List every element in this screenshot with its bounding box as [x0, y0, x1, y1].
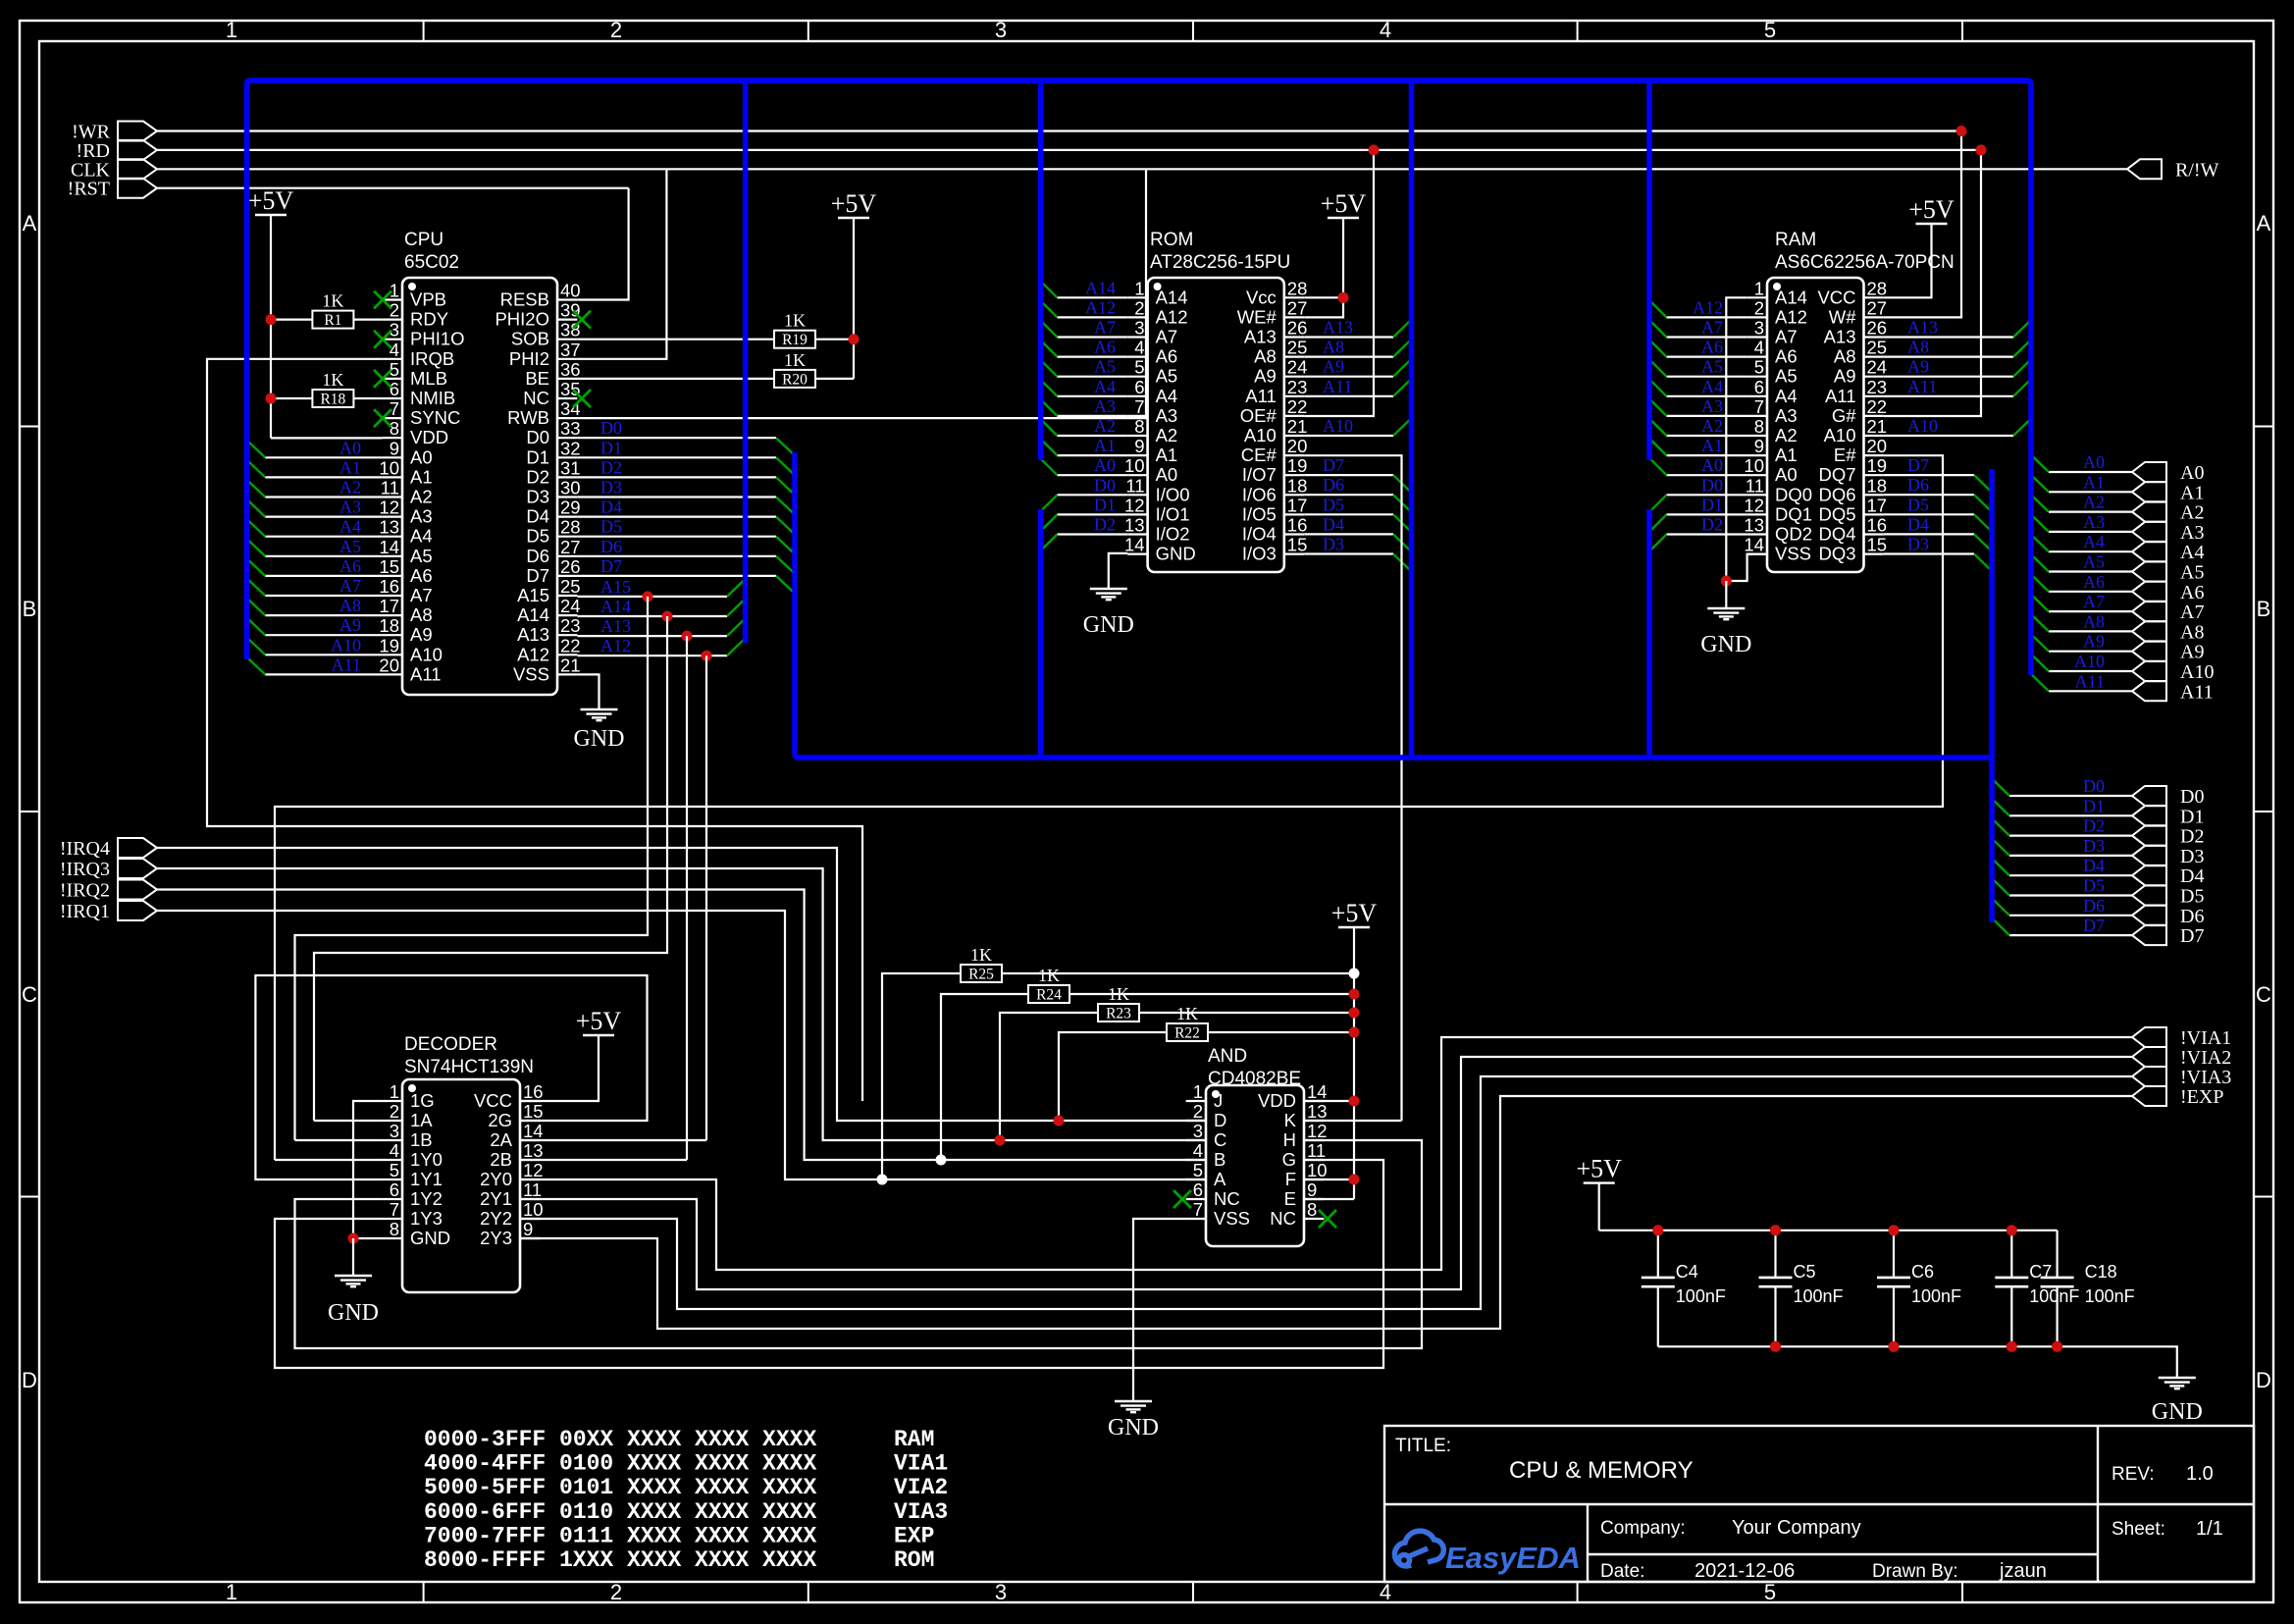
svg-text:A7: A7 [2180, 602, 2204, 623]
svg-text:10: 10 [379, 457, 399, 478]
svg-text:D: D [22, 1368, 37, 1392]
svg-text:D7: D7 [1323, 455, 1344, 475]
svg-text:1K: 1K [970, 945, 992, 965]
svg-text:6: 6 [390, 1179, 399, 1200]
svg-text:VCC: VCC [1817, 287, 1855, 307]
svg-text:3: 3 [1134, 318, 1144, 339]
svg-text:DQ1: DQ1 [1775, 503, 1812, 524]
svg-text:2021-12-06: 2021-12-06 [1694, 1560, 1795, 1582]
svg-text:A11: A11 [1825, 386, 1856, 406]
svg-text:EXP: EXP [894, 1523, 934, 1548]
svg-text:D4: D4 [1907, 514, 1929, 534]
svg-text:4: 4 [1754, 338, 1764, 358]
svg-text:23: 23 [1287, 377, 1308, 397]
svg-text:D2: D2 [526, 466, 549, 487]
svg-text:A13: A13 [517, 624, 549, 645]
svg-text:VSS: VSS [1775, 544, 1811, 564]
svg-text:5: 5 [1193, 1160, 1203, 1180]
svg-text:R/!W: R/!W [2175, 159, 2219, 181]
svg-text:1Y3: 1Y3 [410, 1208, 443, 1229]
svg-text:16: 16 [1867, 515, 1888, 536]
svg-text:A0: A0 [1094, 455, 1116, 475]
svg-text:D7: D7 [1907, 455, 1929, 475]
svg-text:14: 14 [1744, 535, 1764, 555]
svg-text:D2: D2 [600, 457, 622, 477]
svg-text:4: 4 [1380, 1580, 1391, 1604]
svg-text:D4: D4 [2083, 856, 2105, 875]
svg-text:A7: A7 [1094, 318, 1116, 338]
svg-text:!IRQ3: !IRQ3 [60, 859, 110, 880]
svg-text:VIA1: VIA1 [894, 1451, 948, 1477]
svg-text:10: 10 [1744, 455, 1764, 476]
svg-text:A9: A9 [1254, 366, 1277, 387]
svg-text:EasyEDA: EasyEDA [1445, 1541, 1581, 1575]
svg-text:A5: A5 [1156, 366, 1178, 387]
svg-text:6: 6 [1134, 377, 1144, 397]
svg-text:26: 26 [560, 556, 581, 577]
svg-text:A1: A1 [2180, 482, 2204, 503]
svg-text:A14: A14 [1085, 278, 1116, 297]
svg-text:1K: 1K [1038, 966, 1060, 985]
svg-text:9: 9 [1134, 436, 1144, 456]
svg-text:4: 4 [390, 340, 399, 360]
svg-text:VIA3: VIA3 [894, 1499, 948, 1525]
svg-text:D1: D1 [600, 438, 622, 457]
svg-text:11: 11 [1746, 475, 1764, 496]
svg-text:D0: D0 [2083, 776, 2105, 796]
svg-text:7: 7 [390, 1199, 399, 1220]
svg-text:ROM: ROM [1150, 230, 1193, 250]
svg-text:D3: D3 [526, 487, 549, 507]
svg-text:21: 21 [1287, 416, 1308, 437]
svg-text:24: 24 [1867, 357, 1888, 378]
svg-text:D4: D4 [1323, 514, 1344, 534]
svg-text:C6: C6 [1911, 1262, 1934, 1282]
svg-text:7000-7FFF 0111 XXXX XXXX XXXX: 7000-7FFF 0111 XXXX XXXX XXXX [424, 1523, 816, 1548]
svg-text:A13: A13 [1907, 318, 1938, 338]
svg-text:1: 1 [1134, 278, 1144, 298]
svg-text:18: 18 [1287, 475, 1308, 496]
svg-text:13: 13 [1307, 1101, 1328, 1122]
svg-text:I/O2: I/O2 [1156, 524, 1190, 545]
svg-text:G#: G# [1832, 405, 1856, 426]
svg-text:C: C [2256, 982, 2271, 1007]
svg-text:8: 8 [1307, 1199, 1317, 1220]
svg-text:jzaun: jzaun [1999, 1560, 2047, 1582]
svg-text:PHI2: PHI2 [509, 348, 549, 369]
svg-text:A2: A2 [1775, 425, 1798, 445]
svg-text:D: D [2256, 1368, 2271, 1392]
svg-text:4000-4FFF 0100 XXXX XXXX XXXX: 4000-4FFF 0100 XXXX XXXX XXXX [424, 1451, 816, 1477]
svg-text:2Y3: 2Y3 [480, 1228, 512, 1248]
svg-text:1K: 1K [1108, 984, 1129, 1004]
svg-text:A4: A4 [1156, 386, 1178, 406]
svg-text:18: 18 [1867, 475, 1888, 496]
svg-text:A4: A4 [1094, 377, 1116, 396]
svg-text:9: 9 [1754, 436, 1764, 456]
svg-text:A9: A9 [2083, 632, 2105, 652]
svg-text:12: 12 [1307, 1121, 1328, 1141]
svg-text:REV:: REV: [2112, 1464, 2155, 1485]
svg-text:A3: A3 [2180, 522, 2204, 544]
svg-text:D2: D2 [2083, 816, 2105, 836]
svg-text:17: 17 [379, 596, 399, 616]
svg-text:D1: D1 [1094, 495, 1116, 514]
svg-text:2: 2 [1754, 297, 1764, 318]
svg-text:D1: D1 [526, 446, 549, 467]
svg-text:A0: A0 [2180, 462, 2204, 484]
svg-text:23: 23 [560, 615, 581, 636]
svg-text:A11: A11 [1323, 377, 1352, 396]
svg-text:2: 2 [1134, 297, 1144, 318]
svg-text:5000-5FFF 0101 XXXX XXXX XXXX: 5000-5FFF 0101 XXXX XXXX XXXX [424, 1475, 816, 1500]
svg-text:A8: A8 [339, 596, 361, 615]
svg-text:11: 11 [1307, 1140, 1326, 1161]
svg-text:13: 13 [1744, 515, 1764, 536]
svg-text:D0: D0 [1094, 475, 1116, 495]
svg-text:33: 33 [560, 418, 581, 439]
svg-text:1Y2: 1Y2 [410, 1188, 443, 1209]
svg-text:D3: D3 [600, 478, 622, 498]
svg-text:A9: A9 [2180, 642, 2204, 663]
svg-text:A0: A0 [1775, 464, 1798, 485]
svg-text:R20: R20 [782, 371, 808, 388]
svg-text:1/1: 1/1 [2196, 1518, 2223, 1540]
svg-text:D2: D2 [1701, 515, 1723, 535]
svg-text:W#: W# [1829, 306, 1856, 327]
svg-text:A14: A14 [1775, 287, 1807, 307]
svg-text:A8: A8 [2180, 621, 2204, 643]
svg-text:15: 15 [379, 556, 399, 577]
svg-text:D6: D6 [600, 537, 622, 556]
svg-text:CE#: CE# [1241, 445, 1277, 465]
svg-text:21: 21 [1867, 416, 1888, 437]
svg-text:6: 6 [390, 379, 399, 399]
svg-text:14: 14 [1124, 535, 1145, 555]
svg-text:27: 27 [1867, 297, 1888, 318]
svg-text:A12: A12 [600, 636, 631, 655]
svg-text:40: 40 [560, 281, 581, 301]
svg-text:20: 20 [1287, 436, 1308, 456]
svg-text:GND: GND [2152, 1399, 2203, 1425]
svg-text:A5: A5 [2180, 562, 2204, 584]
svg-text:D5: D5 [2083, 876, 2105, 896]
svg-text:A4: A4 [2180, 542, 2204, 563]
svg-text:13: 13 [1124, 515, 1145, 536]
svg-text:28: 28 [560, 517, 581, 538]
svg-text:29: 29 [560, 498, 581, 518]
svg-text:GND: GND [1108, 1415, 1159, 1441]
svg-text:9: 9 [523, 1219, 533, 1239]
svg-text:10: 10 [523, 1199, 544, 1220]
svg-text:19: 19 [1867, 455, 1888, 476]
svg-text:A12: A12 [1156, 306, 1188, 327]
svg-text:A3: A3 [339, 498, 361, 517]
svg-text:Vcc: Vcc [1246, 287, 1277, 307]
svg-text:D7: D7 [526, 565, 549, 586]
svg-text:A11: A11 [1907, 377, 1937, 396]
svg-text:3: 3 [995, 18, 1007, 42]
svg-text:A2: A2 [1156, 425, 1178, 445]
svg-text:1G: 1G [410, 1090, 435, 1111]
svg-text:VDD: VDD [1258, 1090, 1296, 1111]
svg-text:27: 27 [560, 537, 581, 557]
svg-text:A7: A7 [339, 576, 361, 596]
svg-text:11: 11 [381, 478, 399, 498]
svg-text:VDD: VDD [410, 427, 448, 447]
svg-text:R19: R19 [782, 332, 808, 348]
svg-text:A1: A1 [1156, 445, 1178, 465]
svg-text:A5: A5 [339, 537, 361, 556]
svg-text:+5V: +5V [1908, 195, 1955, 224]
svg-text:!VIA1: !VIA1 [2180, 1027, 2231, 1049]
svg-text:D5: D5 [1907, 495, 1929, 514]
svg-text:C18: C18 [2085, 1262, 2117, 1282]
svg-text:11: 11 [1125, 475, 1144, 496]
svg-text:VCC: VCC [474, 1090, 512, 1111]
svg-text:+5V: +5V [1331, 899, 1378, 927]
svg-text:A1: A1 [339, 457, 361, 477]
svg-text:A: A [2257, 211, 2271, 236]
svg-text:ROM: ROM [894, 1547, 934, 1573]
svg-text:D3: D3 [2083, 836, 2105, 856]
svg-text:2: 2 [390, 1101, 399, 1122]
svg-text:A10: A10 [2074, 652, 2105, 671]
svg-text:1K: 1K [784, 311, 806, 331]
svg-text:7: 7 [1134, 396, 1144, 417]
svg-text:I/O1: I/O1 [1156, 503, 1190, 524]
svg-text:DQ4: DQ4 [1818, 524, 1855, 545]
svg-text:A11: A11 [1245, 386, 1277, 406]
svg-text:1K: 1K [322, 370, 343, 390]
svg-text:Drawn By:: Drawn By: [1872, 1561, 1958, 1582]
svg-text:D4: D4 [526, 506, 549, 527]
svg-text:24: 24 [1287, 357, 1308, 378]
svg-text:A4: A4 [1701, 377, 1723, 396]
svg-text:7: 7 [1754, 396, 1764, 417]
svg-text:3: 3 [1193, 1121, 1203, 1141]
svg-text:NC: NC [1214, 1188, 1240, 1209]
svg-text:2A: 2A [490, 1129, 512, 1150]
svg-text:A12: A12 [517, 644, 549, 664]
svg-text:2Y2: 2Y2 [480, 1208, 512, 1229]
svg-text:A5: A5 [1775, 366, 1798, 387]
svg-text:A3: A3 [410, 506, 433, 527]
svg-text:A11: A11 [2180, 681, 2214, 703]
svg-text:!EXP: !EXP [2180, 1086, 2223, 1108]
svg-text:4: 4 [1193, 1140, 1203, 1161]
svg-text:A8: A8 [1323, 338, 1344, 357]
svg-text:A4: A4 [1775, 386, 1798, 406]
svg-text:A7: A7 [2083, 592, 2105, 611]
svg-text:RESB: RESB [500, 289, 549, 310]
svg-text:BE: BE [525, 368, 549, 389]
svg-text:D7: D7 [600, 556, 622, 576]
svg-text:A2: A2 [1701, 416, 1723, 436]
svg-text:3: 3 [390, 1121, 399, 1141]
svg-text:D2: D2 [1094, 515, 1116, 535]
svg-text:!RST: !RST [68, 179, 110, 200]
svg-text:100nF: 100nF [1676, 1286, 1726, 1306]
svg-text:1K: 1K [322, 291, 343, 311]
svg-text:2: 2 [610, 18, 622, 42]
svg-text:28: 28 [1287, 278, 1308, 298]
svg-text:13: 13 [379, 517, 399, 538]
svg-text:D0: D0 [1701, 475, 1723, 495]
svg-text:5: 5 [1754, 357, 1764, 378]
svg-text:A10: A10 [331, 635, 361, 655]
svg-text:SYNC: SYNC [410, 407, 460, 428]
svg-text:8: 8 [390, 1219, 399, 1239]
svg-text:A2: A2 [339, 478, 361, 498]
svg-text:37: 37 [560, 340, 581, 360]
svg-text:12: 12 [1744, 495, 1764, 515]
svg-text:4: 4 [390, 1140, 399, 1161]
svg-text:A9: A9 [1323, 357, 1344, 377]
svg-text:1K: 1K [784, 350, 806, 370]
svg-text:4: 4 [1380, 18, 1391, 42]
svg-text:C5: C5 [1794, 1262, 1816, 1282]
svg-text:A4: A4 [2083, 532, 2105, 551]
svg-text:VIA2: VIA2 [894, 1475, 948, 1500]
svg-text:I/O7: I/O7 [1242, 464, 1277, 485]
svg-text:5: 5 [1764, 1580, 1776, 1604]
svg-text:B: B [23, 597, 37, 621]
svg-text:D1: D1 [2180, 806, 2204, 827]
svg-text:14: 14 [523, 1121, 544, 1141]
svg-text:A3: A3 [2083, 512, 2105, 532]
svg-text:A10: A10 [2180, 661, 2214, 683]
svg-text:A12: A12 [1085, 297, 1116, 317]
svg-text:21: 21 [560, 655, 581, 675]
svg-text:!IRQ2: !IRQ2 [60, 880, 110, 902]
svg-text:5: 5 [1134, 357, 1144, 378]
svg-text:A15: A15 [600, 577, 631, 597]
svg-text:WE#: WE# [1237, 306, 1277, 327]
svg-text:A8: A8 [2083, 611, 2105, 631]
svg-text:8000-FFFF 1XXX XXXX XXXX XXXX: 8000-FFFF 1XXX XXXX XXXX XXXX [424, 1547, 816, 1573]
svg-text:OE#: OE# [1240, 405, 1277, 426]
svg-text:B: B [2257, 597, 2271, 621]
svg-text:A13: A13 [1323, 318, 1353, 338]
svg-text:A12: A12 [1775, 306, 1807, 327]
svg-text:1: 1 [1754, 278, 1764, 298]
svg-text:A14: A14 [600, 597, 631, 616]
svg-text:12: 12 [379, 498, 399, 518]
svg-text:A: A [23, 211, 37, 236]
svg-text:H: H [1283, 1129, 1296, 1150]
svg-text:A14: A14 [517, 604, 549, 625]
svg-text:!VIA3: !VIA3 [2180, 1067, 2231, 1088]
svg-text:TITLE:: TITLE: [1395, 1436, 1451, 1456]
svg-text:9: 9 [1307, 1179, 1317, 1200]
svg-text:10: 10 [1307, 1160, 1328, 1180]
svg-text:DQ7: DQ7 [1818, 464, 1855, 485]
svg-text:D5: D5 [600, 517, 622, 537]
svg-text:14: 14 [379, 537, 399, 557]
svg-text:A6: A6 [1775, 346, 1798, 367]
svg-text:22: 22 [1867, 396, 1888, 417]
svg-text:I/O5: I/O5 [1242, 503, 1277, 524]
svg-text:D7: D7 [2083, 916, 2105, 935]
svg-text:D6: D6 [1323, 475, 1344, 495]
svg-text:+5V: +5V [1576, 1155, 1622, 1183]
svg-text:D6: D6 [526, 546, 549, 566]
svg-text:C4: C4 [1676, 1262, 1698, 1282]
svg-text:1B: 1B [410, 1129, 433, 1150]
svg-text:GND: GND [1700, 632, 1751, 657]
svg-text:A11: A11 [410, 663, 442, 684]
svg-text:D3: D3 [2180, 846, 2204, 867]
svg-text:16: 16 [1287, 515, 1308, 536]
svg-text:I/O4: I/O4 [1242, 524, 1277, 545]
svg-text:D3: D3 [1907, 535, 1929, 554]
svg-text:F: F [1285, 1169, 1296, 1189]
svg-text:+5V: +5V [248, 186, 294, 215]
svg-text:2B: 2B [490, 1149, 512, 1170]
svg-text:A9: A9 [1834, 366, 1856, 387]
svg-text:D5: D5 [1323, 495, 1344, 514]
svg-text:D3: D3 [1323, 535, 1344, 554]
svg-text:GND: GND [574, 726, 625, 752]
svg-text:C: C [22, 982, 37, 1007]
svg-text:2: 2 [390, 300, 399, 321]
svg-text:A13: A13 [1244, 327, 1277, 347]
svg-text:VPB: VPB [410, 289, 446, 310]
svg-text:R23: R23 [1106, 1006, 1131, 1022]
svg-text:10: 10 [1124, 455, 1145, 476]
svg-text:+5V: +5V [576, 1007, 622, 1035]
svg-text:A7: A7 [1775, 327, 1798, 347]
svg-text:D1: D1 [2083, 796, 2105, 815]
svg-text:DECODER: DECODER [404, 1034, 497, 1055]
svg-text:A14: A14 [1156, 287, 1188, 307]
svg-text:22: 22 [1287, 396, 1308, 417]
svg-text:39: 39 [560, 300, 581, 321]
svg-text:CD4082BE: CD4082BE [1208, 1069, 1301, 1089]
svg-text:11: 11 [523, 1179, 542, 1200]
svg-text:D6: D6 [2083, 896, 2105, 916]
svg-text:A10: A10 [410, 644, 443, 664]
svg-text:A: A [1214, 1169, 1226, 1189]
svg-text:A7: A7 [410, 585, 433, 605]
svg-text:15: 15 [523, 1101, 544, 1122]
svg-text:A0: A0 [339, 438, 361, 457]
svg-text:A1: A1 [1775, 445, 1798, 465]
svg-text:26: 26 [1287, 318, 1308, 339]
svg-text:A11: A11 [2075, 671, 2105, 691]
svg-text:CPU: CPU [404, 230, 443, 250]
svg-text:8: 8 [1134, 416, 1144, 437]
svg-text:9: 9 [390, 438, 399, 458]
svg-text:PHI1O: PHI1O [410, 329, 465, 349]
svg-text:R1: R1 [324, 312, 341, 329]
svg-text:A3: A3 [1094, 396, 1116, 416]
svg-text:2: 2 [610, 1580, 622, 1604]
svg-text:A1: A1 [1094, 436, 1116, 455]
svg-text:Sheet:: Sheet: [2112, 1519, 2165, 1540]
svg-text:A0: A0 [1701, 455, 1723, 475]
svg-text:A2: A2 [410, 487, 433, 507]
svg-text:A1: A1 [1701, 436, 1723, 455]
svg-text:1Y1: 1Y1 [410, 1169, 443, 1189]
svg-text:A11: A11 [332, 655, 361, 674]
svg-text:1A: 1A [410, 1110, 433, 1130]
svg-text:28: 28 [1867, 278, 1888, 298]
svg-text:DQ0: DQ0 [1775, 484, 1812, 504]
svg-text:Date:: Date: [1600, 1561, 1644, 1582]
svg-text:6: 6 [1193, 1179, 1203, 1200]
